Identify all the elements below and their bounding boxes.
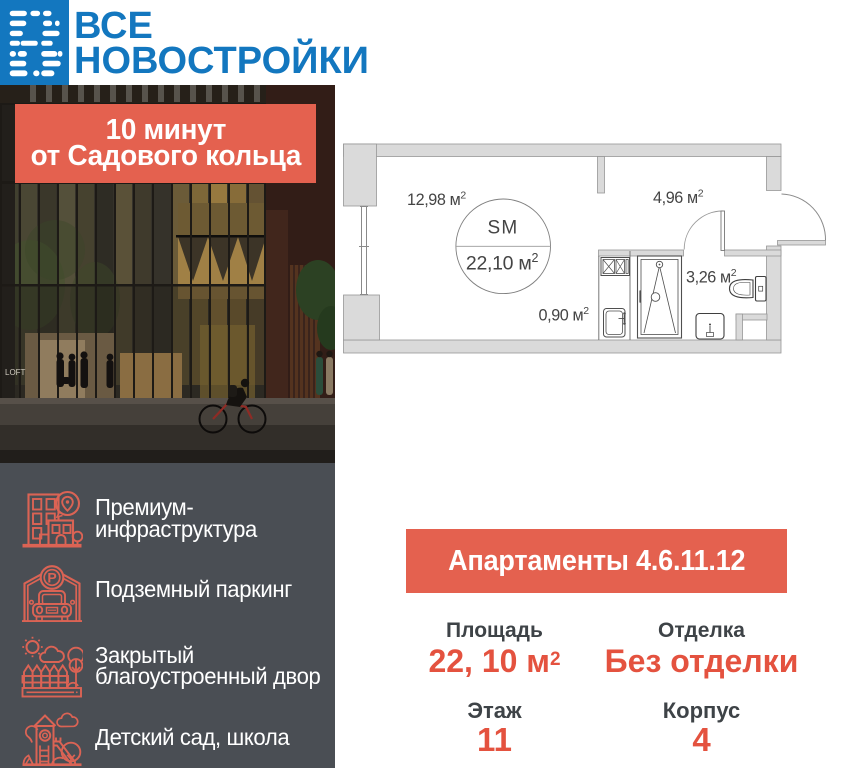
svg-text:22,10 м2: 22,10 м2 bbox=[466, 251, 539, 275]
svg-text:3,26 м2: 3,26 м2 bbox=[686, 267, 737, 287]
svg-text:SM: SM bbox=[488, 218, 519, 239]
svg-text:12,98 м2: 12,98 м2 bbox=[407, 190, 466, 210]
svg-text:4,96 м2: 4,96 м2 bbox=[653, 188, 704, 208]
svg-text:0,90 м2: 0,90 м2 bbox=[539, 305, 590, 325]
